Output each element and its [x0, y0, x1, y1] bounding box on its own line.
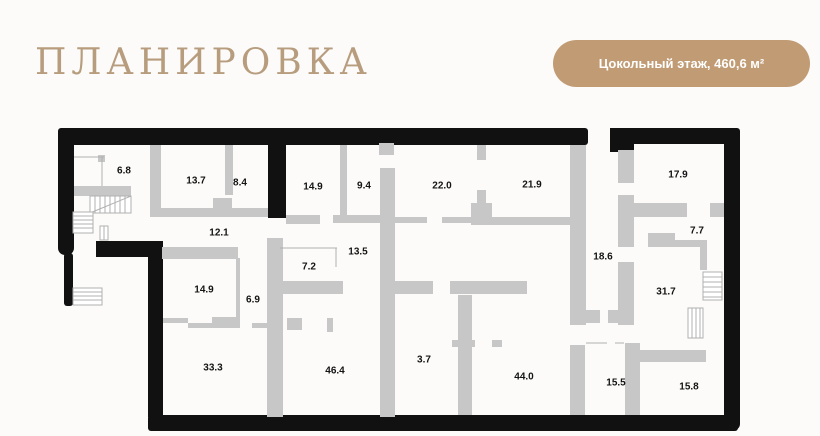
room-area-label: 9.4 — [357, 181, 371, 192]
room-area-label: 21.9 — [522, 180, 541, 191]
room-area-label: 15.8 — [679, 382, 698, 393]
room-area-label: 3.7 — [417, 355, 431, 366]
room-area-label: 6.8 — [117, 166, 131, 177]
room-area-label: 12.1 — [209, 228, 228, 239]
room-area-label: 7.2 — [302, 262, 316, 273]
walls-gray — [74, 143, 724, 417]
room-area-label: 31.7 — [656, 287, 675, 298]
room-area-label: 7.7 — [690, 226, 704, 237]
floor-plan-svg — [0, 0, 820, 436]
room-area-label: 6.9 — [246, 295, 260, 306]
room-area-label: 22.0 — [432, 181, 451, 192]
room-area-label: 44.0 — [514, 372, 533, 383]
room-area-label: 14.9 — [194, 285, 213, 296]
room-area-label: 13.5 — [348, 247, 367, 258]
room-area-label: 33.3 — [203, 363, 222, 374]
room-area-label: 46.4 — [325, 366, 344, 377]
room-area-label: 15.5 — [606, 378, 625, 389]
room-area-label: 13.7 — [186, 176, 205, 187]
room-area-label: 17.9 — [668, 170, 687, 181]
room-area-label: 18.6 — [593, 252, 612, 263]
room-area-label: 14.9 — [303, 182, 322, 193]
room-area-label: 8.4 — [233, 178, 247, 189]
floor-plan: 6.813.78.414.99.422.021.917.912.113.57.2… — [0, 0, 820, 436]
page-root: { "header": { "title": "ПЛАНИРОВКА" }, "… — [0, 0, 820, 436]
